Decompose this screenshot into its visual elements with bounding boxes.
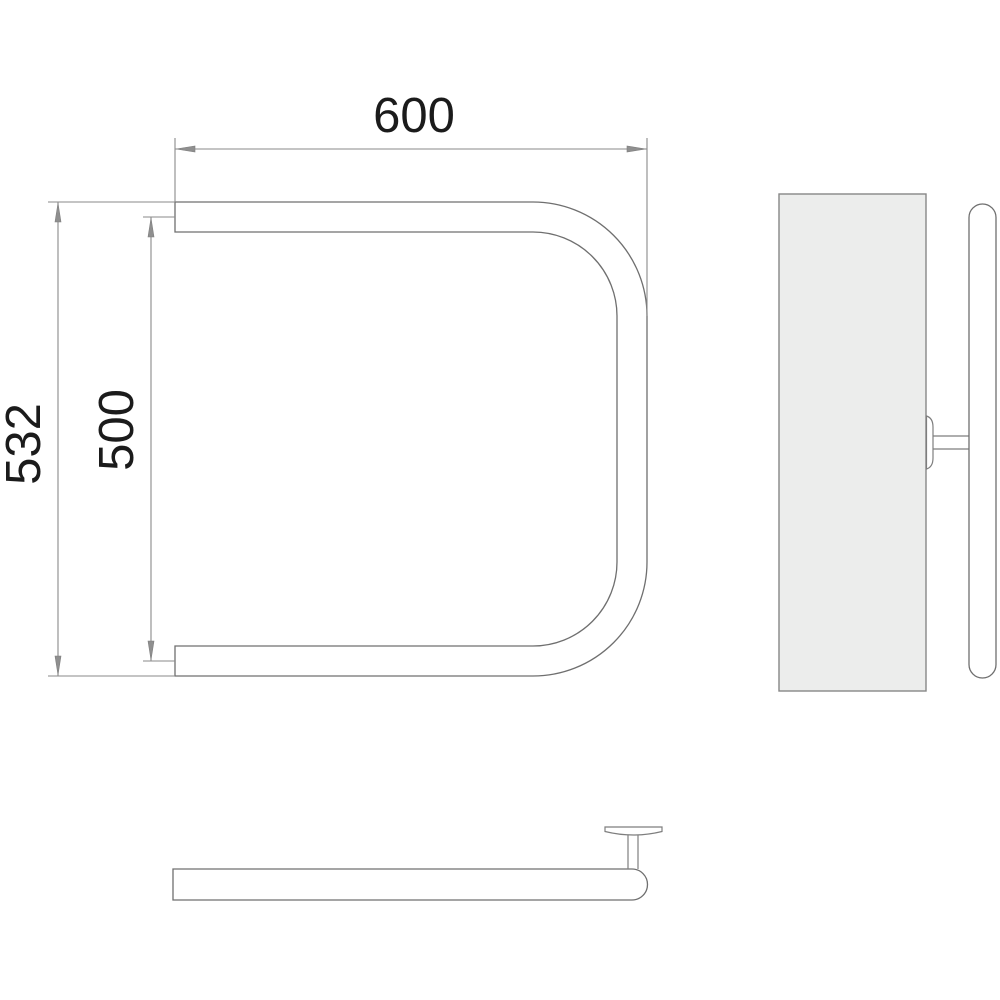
dim-overall-value: 532 [0, 403, 51, 485]
technical-drawing: 600 532 500 [0, 0, 1000, 1000]
dim-centers-value: 500 [90, 389, 144, 471]
drawing-canvas: 600 532 500 [0, 0, 1000, 1000]
dim-overall-arrow-top [55, 203, 61, 222]
front-tube-outline [175, 202, 647, 676]
mount-flange-top [605, 827, 662, 835]
wall-panel [779, 194, 926, 691]
side-view [779, 194, 996, 691]
mount-flange [927, 416, 934, 469]
dim-height-centers: 500 [90, 217, 175, 661]
dim-centers-arrow-top [148, 218, 154, 237]
side-tube [969, 204, 996, 678]
dim-width-arrow-left [176, 146, 195, 152]
dim-width-arrow-right [627, 146, 646, 152]
dim-height-overall: 532 [0, 202, 175, 676]
dim-width-value: 600 [373, 89, 455, 143]
dim-overall-arrow-bottom [55, 656, 61, 675]
front-view [175, 202, 647, 676]
dim-centers-arrow-bottom [148, 641, 154, 660]
top-view [173, 827, 662, 900]
top-tube [173, 869, 648, 900]
